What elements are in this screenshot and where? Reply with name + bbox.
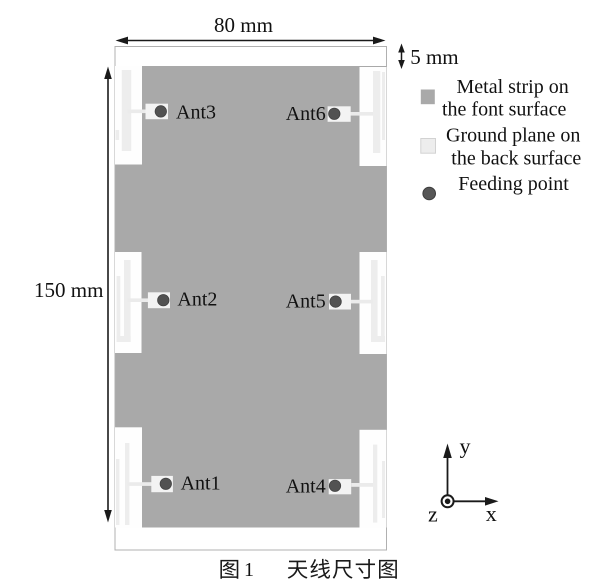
svg-text:x: x xyxy=(486,501,497,526)
svg-text:150 mm: 150 mm xyxy=(34,278,103,302)
svg-text:Ant6: Ant6 xyxy=(286,103,326,125)
svg-text:Feeding point: Feeding point xyxy=(458,173,569,195)
svg-text:Ant1: Ant1 xyxy=(181,472,221,494)
svg-text:5 mm: 5 mm xyxy=(410,45,458,69)
svg-text:Ground plane on: Ground plane on xyxy=(446,124,580,146)
svg-text:1: 1 xyxy=(244,559,254,581)
svg-text:Ant4: Ant4 xyxy=(286,476,326,498)
svg-text:the font surface: the font surface xyxy=(442,99,567,121)
svg-text:Ant2: Ant2 xyxy=(177,288,217,310)
svg-text:z: z xyxy=(428,502,438,527)
svg-text:Ant3: Ant3 xyxy=(176,101,216,123)
svg-text:Metal strip on: Metal strip on xyxy=(457,76,569,98)
svg-text:the back surface: the back surface xyxy=(451,147,581,169)
svg-text:y: y xyxy=(460,434,471,459)
svg-text:Ant5: Ant5 xyxy=(286,291,326,313)
svg-text:80 mm: 80 mm xyxy=(214,13,273,37)
